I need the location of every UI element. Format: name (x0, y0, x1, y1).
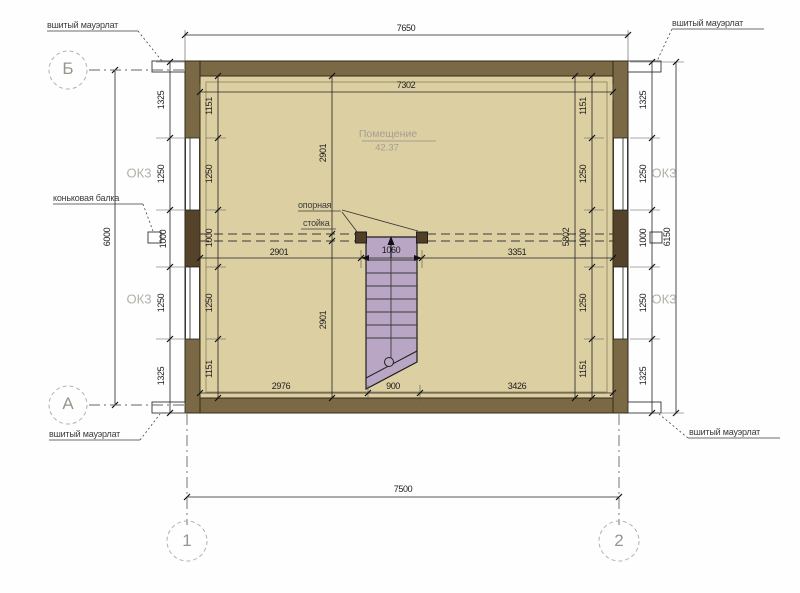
dim-left-outer-4: 1250 (156, 294, 166, 312)
dim-top-inner: 7302 (397, 80, 415, 90)
dim-left-outer-1: 1325 (156, 91, 166, 109)
dim-right-outer-3: 1000 (638, 229, 648, 247)
dim-bottom-outer: 7500 (394, 484, 412, 494)
dim-bottom-left: 2976 (272, 381, 290, 391)
axis-label-2: 2 (614, 531, 623, 551)
stairs-break-mark-circle (385, 358, 394, 367)
dim-left-inner-1: 1151 (204, 97, 214, 115)
dim-left-outer-2: 1250 (156, 165, 166, 183)
dim-right-outer-2: 1250 (638, 165, 648, 183)
window-left-upper (186, 138, 200, 210)
dim-left-overall: 6000 (102, 228, 112, 246)
axis-label-1: 1 (182, 531, 191, 551)
room-area: 42.37 (375, 143, 399, 154)
mauerlat-bottom-left (152, 402, 185, 413)
dim-mid-stairs: 1060 (382, 245, 400, 255)
dim-left-outer-5: 1325 (156, 367, 166, 385)
dim-right-inner-1: 1151 (578, 97, 588, 115)
label-mauerlat-bottom-left: вшитый мауэрлат (49, 429, 120, 439)
label-ridge-beam: коньковая балка (53, 193, 119, 203)
window-mark-right-lower: ОК3 (652, 292, 677, 307)
wall-segment-ridge-right (613, 210, 628, 267)
wall-bottom (185, 398, 628, 413)
window-left-lower (186, 267, 200, 339)
dim-right-outer-4: 1250 (638, 294, 648, 312)
wall-segment-ridge-left (185, 210, 200, 267)
label-support-post-line1: опорная (298, 200, 331, 210)
axis-label-A: А (62, 394, 73, 414)
label-support-post-line2: стойка (303, 218, 330, 228)
floor-plan-canvas: вшитый мауэрлат вшитый мауэрлат вшитый м… (0, 0, 800, 593)
dim-vert-upper: 2901 (318, 144, 328, 162)
dim-top-outer: 7650 (397, 23, 415, 33)
window-mark-left-lower: ОК3 (127, 292, 152, 307)
dim-right-inner-5: 1151 (578, 360, 588, 378)
dim-left-inner-5: 1151 (204, 360, 214, 378)
dim-left-inner-3: 1000 (204, 229, 214, 247)
dim-right-overall: 6150 (662, 228, 672, 246)
window-mark-right-upper: ОК3 (652, 166, 677, 181)
label-mauerlat-bottom-right: вшитый мауэрлат (689, 427, 760, 437)
dim-bottom-right: 3426 (508, 381, 526, 391)
window-mark-left-upper: ОК3 (127, 166, 152, 181)
wall-top (185, 61, 628, 76)
dim-right-inner-3: 1000 (578, 229, 588, 247)
dim-bottom-stairs: 900 (386, 381, 400, 391)
dim-inner-height: 5802 (561, 228, 571, 246)
window-right-lower (614, 267, 628, 339)
dim-mid-left: 2901 (270, 247, 288, 257)
dim-mid-right: 3351 (508, 247, 526, 257)
dim-right-inner-2: 1250 (578, 165, 588, 183)
dim-left-inner-2: 1250 (204, 165, 214, 183)
room-name: Помещение (359, 128, 417, 140)
axis-label-B: Б (62, 59, 73, 79)
mauerlat-top-right (628, 61, 661, 72)
dim-vert-lower: 2901 (318, 311, 328, 329)
window-right-upper (614, 138, 628, 210)
support-post-left (356, 232, 367, 243)
dim-right-inner-4: 1250 (578, 294, 588, 312)
label-mauerlat-top-left: вшитый мауэрлат (47, 20, 118, 30)
dim-left-outer-3: 1000 (158, 230, 168, 248)
mauerlat-bottom-right (628, 402, 661, 413)
dim-left-inner-4: 1250 (204, 294, 214, 312)
dim-right-outer-5: 1325 (638, 367, 648, 385)
support-post-right (417, 232, 428, 243)
label-mauerlat-top-right: вшитый мауэрлат (672, 18, 743, 28)
dim-right-outer-1: 1325 (638, 91, 648, 109)
